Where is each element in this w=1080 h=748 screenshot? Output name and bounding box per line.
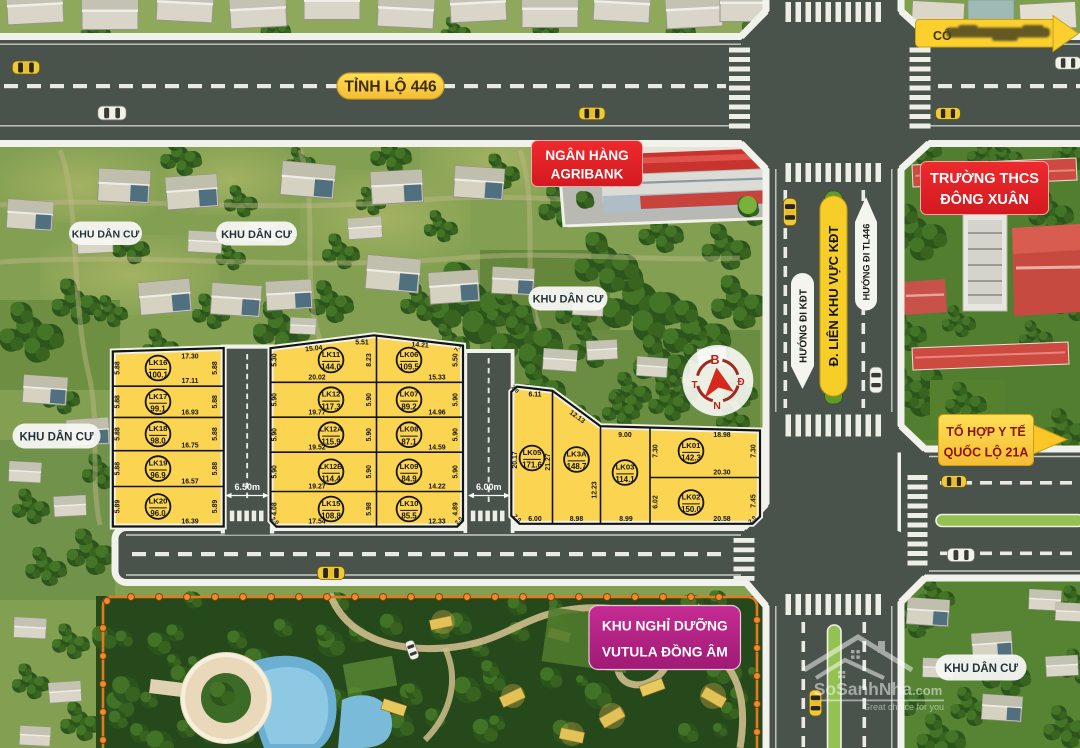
svg-text:148.7: 148.7 bbox=[567, 462, 587, 471]
svg-text:TỔ HỢP Y TẾ: TỔ HỢP Y TẾ bbox=[946, 424, 1025, 439]
svg-text:6.00: 6.00 bbox=[528, 516, 542, 523]
svg-text:20.58: 20.58 bbox=[713, 516, 730, 523]
svg-text:5.88: 5.88 bbox=[212, 395, 219, 409]
svg-text:5.51: 5.51 bbox=[355, 340, 369, 347]
svg-text:4.08: 4.08 bbox=[271, 502, 278, 516]
svg-text:LK12B: LK12B bbox=[320, 463, 342, 471]
svg-text:12.23: 12.23 bbox=[592, 481, 599, 498]
svg-text:114.1: 114.1 bbox=[615, 475, 635, 484]
svg-text:LK10: LK10 bbox=[400, 499, 419, 508]
svg-text:8.98: 8.98 bbox=[570, 516, 584, 523]
svg-text:KHU DÂN CƯ: KHU DÂN CƯ bbox=[944, 662, 1019, 675]
svg-text:14.96: 14.96 bbox=[428, 409, 445, 416]
svg-text:KHU DÂN CƯ: KHU DÂN CƯ bbox=[19, 431, 94, 444]
svg-text:20.02: 20.02 bbox=[308, 375, 325, 382]
svg-text:96.0: 96.0 bbox=[150, 509, 166, 518]
svg-text:LK07: LK07 bbox=[400, 390, 419, 399]
svg-text:18.98: 18.98 bbox=[713, 432, 730, 439]
svg-text:LK12A: LK12A bbox=[320, 426, 342, 434]
svg-text:5.88: 5.88 bbox=[212, 462, 219, 476]
svg-text:AGRIBANK: AGRIBANK bbox=[551, 167, 624, 182]
svg-text:19.77: 19.77 bbox=[308, 409, 325, 416]
svg-text:5.50: 5.50 bbox=[453, 353, 460, 367]
svg-text:4.89: 4.89 bbox=[453, 502, 460, 516]
svg-text:LK19: LK19 bbox=[149, 459, 168, 468]
svg-text:LK17: LK17 bbox=[149, 392, 168, 401]
svg-text:171.6: 171.6 bbox=[522, 461, 542, 470]
svg-text:17.54: 17.54 bbox=[308, 519, 325, 526]
svg-text:14.21: 14.21 bbox=[411, 341, 429, 349]
svg-text:T: T bbox=[691, 380, 697, 391]
svg-text:VUTULA ĐỒNG ÂM: VUTULA ĐỒNG ÂM bbox=[602, 643, 728, 660]
svg-text:5.89: 5.89 bbox=[212, 500, 219, 514]
svg-text:84.9: 84.9 bbox=[401, 474, 417, 483]
svg-text:5.30: 5.30 bbox=[271, 353, 278, 367]
svg-text:6.11: 6.11 bbox=[528, 392, 541, 399]
svg-text:114.4: 114.4 bbox=[321, 474, 341, 483]
svg-text:5.88: 5.88 bbox=[212, 361, 219, 375]
svg-text:17.11: 17.11 bbox=[182, 378, 199, 385]
svg-text:N: N bbox=[713, 400, 721, 412]
svg-text:LK12: LK12 bbox=[322, 390, 341, 399]
svg-text:5.88: 5.88 bbox=[115, 395, 122, 409]
svg-text:LK08: LK08 bbox=[400, 425, 420, 434]
svg-text:HƯỚNG ĐI TL446: HƯỚNG ĐI TL446 bbox=[861, 224, 872, 301]
svg-text:5.88: 5.88 bbox=[115, 361, 122, 375]
svg-text:Great choice for you: Great choice for you bbox=[863, 702, 944, 712]
svg-text:19.27: 19.27 bbox=[308, 484, 325, 491]
svg-text:5.98: 5.98 bbox=[366, 502, 373, 516]
svg-text:6.02: 6.02 bbox=[653, 495, 660, 509]
svg-text:LK06: LK06 bbox=[400, 350, 419, 359]
svg-text:LK05: LK05 bbox=[523, 448, 543, 457]
svg-text:20.30: 20.30 bbox=[713, 470, 730, 477]
svg-text:5.90: 5.90 bbox=[271, 465, 278, 479]
svg-text:LK09: LK09 bbox=[400, 462, 419, 471]
svg-text:109.5: 109.5 bbox=[399, 363, 419, 372]
svg-text:B: B bbox=[710, 353, 719, 367]
svg-text:20.17: 20.17 bbox=[512, 451, 519, 468]
svg-text:8.23: 8.23 bbox=[366, 353, 373, 367]
svg-text:15.33: 15.33 bbox=[428, 375, 445, 382]
svg-text:17.30: 17.30 bbox=[181, 354, 198, 361]
svg-text:NGÂN HÀNG: NGÂN HÀNG bbox=[545, 148, 628, 163]
svg-text:LK11: LK11 bbox=[322, 350, 341, 359]
svg-text:5.90: 5.90 bbox=[271, 428, 278, 442]
svg-text:7.45: 7.45 bbox=[751, 494, 758, 508]
svg-text:16.75: 16.75 bbox=[181, 443, 198, 450]
svg-text:LK15: LK15 bbox=[322, 499, 342, 508]
svg-text:12.33: 12.33 bbox=[428, 519, 445, 526]
svg-text:5.89: 5.89 bbox=[115, 500, 122, 514]
svg-text:LK02: LK02 bbox=[682, 493, 701, 502]
svg-text:5.90: 5.90 bbox=[453, 428, 460, 442]
svg-text:87.1: 87.1 bbox=[401, 437, 417, 446]
svg-text:7.30: 7.30 bbox=[653, 444, 660, 458]
svg-text:HƯỚNG ĐI KĐT: HƯỚNG ĐI KĐT bbox=[798, 289, 810, 363]
svg-text:14.59: 14.59 bbox=[428, 444, 445, 451]
svg-text:16.93: 16.93 bbox=[181, 409, 198, 416]
svg-text:TỈNH LỘ 446: TỈNH LỘ 446 bbox=[344, 78, 437, 96]
svg-text:LK3A: LK3A bbox=[566, 450, 587, 459]
svg-text:142.3: 142.3 bbox=[681, 454, 701, 463]
svg-text:150.0: 150.0 bbox=[681, 505, 701, 514]
svg-text:LK18: LK18 bbox=[149, 424, 169, 433]
svg-text:TRƯỜNG THCS: TRƯỜNG THCS bbox=[930, 169, 1039, 187]
svg-text:21.27: 21.27 bbox=[545, 453, 552, 470]
svg-text:7.30: 7.30 bbox=[751, 444, 758, 458]
svg-text:89.2: 89.2 bbox=[401, 402, 417, 411]
svg-text:5.90: 5.90 bbox=[453, 393, 460, 407]
svg-text:5.90: 5.90 bbox=[366, 428, 373, 442]
svg-text:ĐÔNG XUÂN: ĐÔNG XUÂN bbox=[940, 190, 1029, 208]
svg-text:5.88: 5.88 bbox=[115, 462, 122, 476]
svg-text:5.88: 5.88 bbox=[115, 427, 122, 441]
svg-text:Đ: Đ bbox=[737, 377, 744, 388]
svg-text:5.90: 5.90 bbox=[271, 393, 278, 407]
svg-text:16.39: 16.39 bbox=[181, 519, 198, 526]
svg-text:96.9: 96.9 bbox=[150, 471, 166, 480]
svg-text:LK16: LK16 bbox=[149, 358, 168, 367]
svg-text:Đ. LIÊN KHU VỰC KĐT: Đ. LIÊN KHU VỰC KĐT bbox=[826, 226, 841, 367]
svg-text:LK03: LK03 bbox=[616, 463, 635, 472]
svg-text:14.22: 14.22 bbox=[428, 484, 445, 491]
svg-text:144.0: 144.0 bbox=[321, 363, 341, 372]
svg-text:5.90: 5.90 bbox=[366, 393, 373, 407]
svg-text:6.50m: 6.50m bbox=[235, 482, 261, 492]
svg-text:85.5: 85.5 bbox=[401, 512, 417, 521]
svg-text:19.52: 19.52 bbox=[308, 444, 325, 451]
svg-text:KHU DÂN CƯ: KHU DÂN CƯ bbox=[533, 293, 605, 306]
svg-text:QUỐC LỘ 21A: QUỐC LỘ 21A bbox=[944, 445, 1029, 460]
svg-text:LK01: LK01 bbox=[682, 441, 702, 450]
svg-text:KHU DÂN CƯ: KHU DÂN CƯ bbox=[72, 228, 140, 241]
svg-text:5.88: 5.88 bbox=[212, 427, 219, 441]
svg-text:LK20: LK20 bbox=[149, 497, 168, 506]
svg-text:16.57: 16.57 bbox=[181, 479, 198, 486]
svg-text:98.0: 98.0 bbox=[150, 437, 166, 446]
svg-text:8.99: 8.99 bbox=[619, 516, 633, 523]
svg-text:6.00m: 6.00m bbox=[476, 482, 502, 492]
svg-text:5.90: 5.90 bbox=[366, 465, 373, 479]
svg-text:9.00: 9.00 bbox=[618, 432, 632, 439]
svg-text:99.1: 99.1 bbox=[150, 404, 166, 413]
svg-text:KHU NGHỈ DƯỠNG: KHU NGHỈ DƯỠNG bbox=[602, 617, 728, 634]
svg-text:5.90: 5.90 bbox=[453, 465, 460, 479]
svg-text:100.1: 100.1 bbox=[148, 371, 168, 380]
svg-text:KHU DÂN CƯ: KHU DÂN CƯ bbox=[221, 228, 293, 241]
